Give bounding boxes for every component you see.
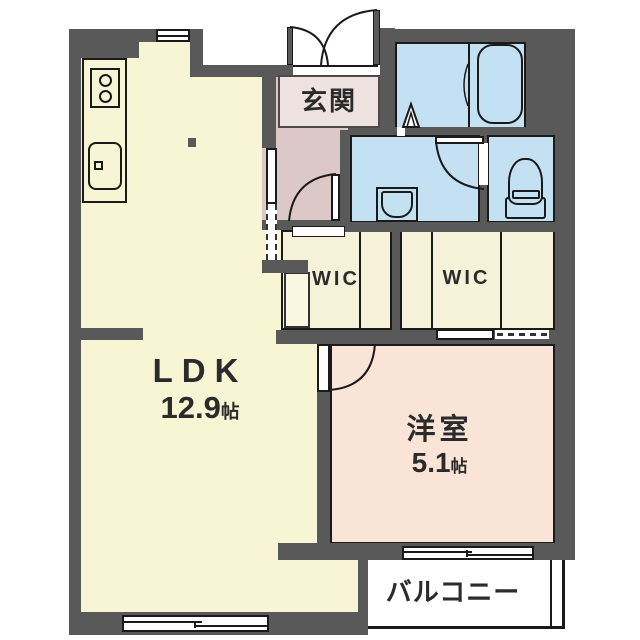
wall-segment [262, 260, 276, 273]
western-door-leaf [317, 344, 330, 392]
window-line [158, 35, 188, 37]
bath-partition [468, 42, 470, 127]
washer-pan [381, 191, 413, 218]
wic2-label: WIC [433, 267, 500, 290]
window-line [124, 621, 202, 623]
sliding-door-track [266, 204, 277, 260]
stove-icon [90, 68, 120, 108]
burner-icon [99, 90, 112, 103]
wic2-door-panel [436, 329, 494, 340]
wic2-divider [500, 231, 502, 329]
bathtub-icon [477, 44, 523, 124]
balcony-inner-line [550, 556, 552, 626]
wall-segment [276, 260, 308, 273]
wic1-doorway [292, 226, 345, 237]
ldk-size: 12.9帖 [105, 390, 295, 426]
window-line [466, 554, 532, 556]
doorway-gap [479, 143, 488, 185]
window-line [194, 625, 267, 627]
western-label-group: 洋室 5.1帖 [352, 414, 527, 480]
wall-segment [340, 222, 575, 232]
window-line [404, 551, 472, 553]
burner-icon [99, 74, 112, 87]
wall-kitchen-stub [81, 328, 143, 340]
kitchen-window [156, 29, 190, 42]
wall-segment [348, 127, 526, 135]
entrance-door-leaf [373, 10, 380, 65]
kitchen-sink-icon [88, 142, 122, 190]
toilet-seat [512, 190, 540, 199]
hall-door-leaf [331, 174, 340, 221]
faucet-icon [94, 161, 103, 170]
genkan-landing: 玄関 [278, 75, 380, 128]
wall-top-right [378, 29, 575, 42]
wall-segment [340, 130, 350, 228]
balcony-label: バルコニー [368, 578, 538, 608]
wic1-cabinet [284, 272, 310, 328]
western-size: 5.1帖 [352, 447, 527, 479]
ldk-label: LDK [105, 352, 295, 390]
wall-segment [262, 63, 276, 148]
wic2-door-track [495, 330, 549, 339]
ldk-label-group: LDK 12.9帖 [105, 352, 295, 426]
washing-machine-icon [376, 187, 418, 222]
window-tick [194, 621, 196, 628]
wall-left [69, 29, 81, 635]
floor-plan: 玄関 LDK 12.9帖 洋室 5 [0, 0, 640, 640]
wall-segment [526, 42, 555, 135]
genkan-label: 玄関 [301, 87, 357, 117]
room-ldk-extension [317, 558, 358, 615]
wall-segment [317, 390, 330, 558]
ldk-window [122, 615, 269, 632]
toilet-door-leaf [435, 136, 484, 144]
western-label: 洋室 [352, 414, 527, 447]
window-tick [466, 550, 468, 557]
wall-segment [392, 230, 400, 330]
wall-right [555, 29, 575, 553]
doorway-gap [397, 127, 405, 136]
pillar [188, 138, 196, 147]
wall-segment [380, 28, 395, 135]
wic1-label: WIC [310, 268, 362, 291]
balcony-window [402, 546, 534, 560]
entrance-door-leaf [287, 27, 293, 65]
sliding-door-panel [266, 148, 277, 204]
